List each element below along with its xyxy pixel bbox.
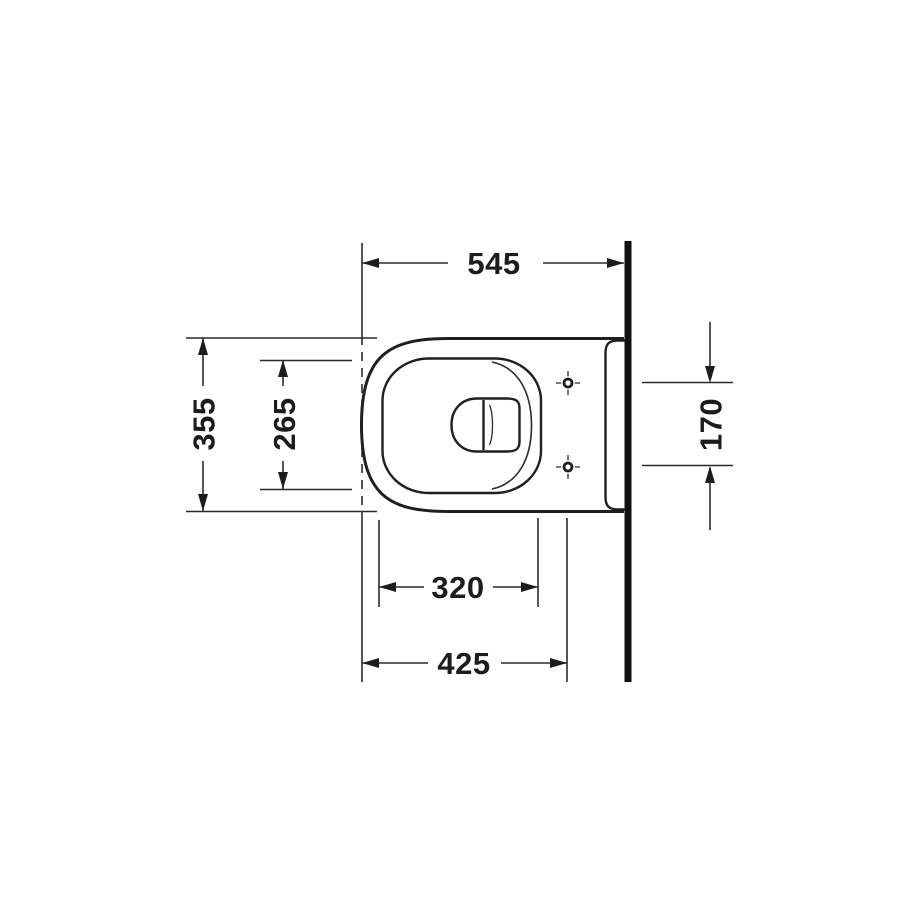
dim-right-label: 170 bbox=[694, 398, 729, 451]
technical-drawing: 545 355 265 bbox=[0, 0, 900, 900]
dim-right-arrow-down-icon bbox=[705, 366, 715, 383]
dim-right-arrow-up-icon bbox=[705, 466, 715, 483]
dim-bottom-outer-label: 425 bbox=[437, 646, 490, 681]
dim-left-outer-label: 355 bbox=[187, 397, 222, 450]
dim-left-inner-arrow-down-icon bbox=[278, 472, 288, 489]
dim-bottom-inner-arrow-right-icon bbox=[521, 582, 538, 592]
mounting-hole-top bbox=[556, 371, 580, 395]
dim-top-label: 545 bbox=[467, 246, 520, 281]
dimension-left-inner: 265 bbox=[260, 360, 352, 490]
dim-top-arrow-right-icon bbox=[607, 258, 624, 268]
dim-top-arrow-left-icon bbox=[362, 258, 379, 268]
dim-bottom-outer-arrow-right-icon bbox=[550, 658, 567, 668]
toilet-mounting-plate-outline bbox=[606, 341, 626, 510]
dimension-bottom-inner: 320 bbox=[379, 518, 538, 607]
dim-left-inner-arrow-up-icon bbox=[278, 360, 288, 377]
toilet-body bbox=[362, 339, 626, 512]
mounting-hole-bottom bbox=[556, 455, 580, 479]
dim-bottom-outer-arrow-left-icon bbox=[362, 658, 379, 668]
mounting-hole-bottom-circle bbox=[564, 463, 572, 471]
mounting-hole-bottom-crosshair-icon bbox=[556, 455, 580, 479]
dim-left-outer-arrow-down-icon bbox=[198, 494, 208, 511]
dimension-top: 545 bbox=[362, 246, 624, 281]
mounting-hole-top-crosshair-icon bbox=[556, 371, 580, 395]
flush-valve-outline bbox=[452, 399, 520, 452]
drawing-canvas: 545 355 265 bbox=[0, 0, 900, 900]
dim-bottom-inner-arrow-left-icon bbox=[379, 582, 396, 592]
dimension-right: 170 bbox=[642, 322, 733, 530]
flush-valve-lens-arc bbox=[490, 405, 493, 445]
bowl-inner-rim-arc bbox=[492, 362, 532, 489]
mounting-hole-top-circle bbox=[564, 379, 572, 387]
dim-left-outer-arrow-up-icon bbox=[198, 338, 208, 355]
dim-bottom-inner-label: 320 bbox=[431, 570, 484, 605]
dim-left-inner-label: 265 bbox=[267, 397, 302, 450]
